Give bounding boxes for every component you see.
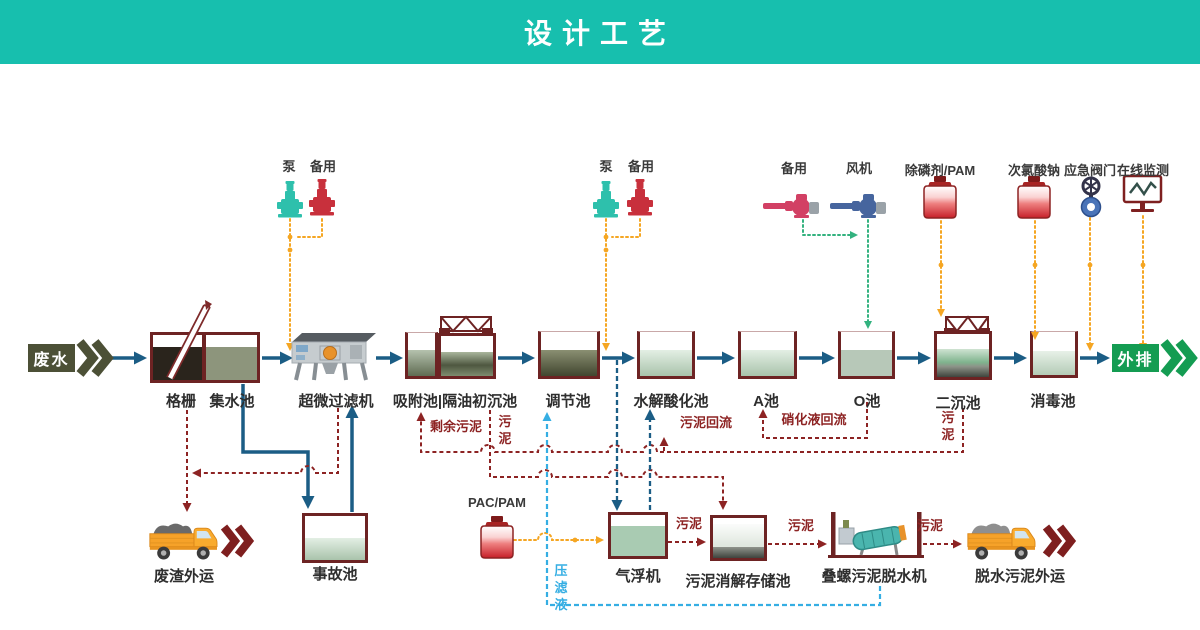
nitrate-return-label: 硝化液回流 [781,409,846,428]
valve-label: 应急阀门 [1064,160,1116,179]
grille-label: 格栅 [166,390,196,411]
regulating-label: 调节池 [545,390,590,411]
process-diagram: 设计工艺 废水 外排 [0,0,1200,630]
adsorption-label: 吸附池|隔油初沉池 [393,390,517,411]
dosing-lines [290,216,1143,540]
flotation-label: 气浮机 [615,565,660,586]
diagram-connectors [0,0,1200,630]
sludge-out-label: 脱水污泥外运 [975,565,1065,586]
collect-label: 集水池 [209,390,254,411]
hydrolysis-label: 水解酸化池 [633,390,708,411]
pump1-backup-label: 备用 [310,156,336,175]
sludge-truck-icon [968,524,1035,560]
pump-icon [593,181,619,218]
rake-icon [167,300,212,379]
backup-blower-icon [763,194,819,218]
o-tank-label: O池 [854,390,881,411]
disinfect-label: 消毒池 [1030,390,1075,411]
accident-label: 事故池 [312,563,357,584]
waste-out-label: 废渣外运 [154,565,214,586]
inlet-label: 废水 [33,346,69,370]
blower-label: 风机 [846,158,872,177]
backup-pump-icon [309,179,335,216]
backup-pump-icon [627,179,653,216]
online-monitor-icon [1124,176,1161,212]
waste-chevron-icon [224,527,249,555]
pump1-label: 泵 [282,156,295,175]
pump2-label: 泵 [599,156,612,175]
ultrafilter-machine-icon [292,333,376,380]
sludge-return-label: 污泥回流 [680,412,732,431]
blower-icon [830,194,886,218]
outlet-chevron-icon [1164,342,1192,374]
dosing-junctions [288,235,1146,543]
air-lines [803,220,868,322]
sludge-label: 污泥 [497,413,513,447]
phosphorus-label: 除磷剂/PAM [905,160,976,179]
phosphorus-agent-jug-icon [924,176,956,218]
a-tank-label: A池 [753,390,779,411]
emergency-valve-icon [1082,178,1101,217]
sludge-store-label: 污泥消解存储池 [685,570,790,591]
clarifier-truss-icons [440,317,989,333]
flotation-lines [617,360,650,510]
pump-icon [277,181,303,218]
ultrafilter-label: 超微过滤机 [298,390,373,411]
inlet-box: 废水 [28,344,75,372]
filtrate-label: 压滤液 [553,562,569,613]
blower-backup-label: 备用 [781,158,807,177]
excess-sludge-label: 剩余污泥 [430,416,482,435]
dewatering-machine-icon [828,512,924,558]
dewater-label: 叠螺污泥脱水机 [821,565,926,586]
sludge-out-chevron-icon [1046,527,1071,555]
waste-truck-icon [150,524,217,560]
hypochlorite-jug-icon [1018,176,1050,218]
monitor-label: 在线监测 [1117,160,1169,179]
pac-pam-label: PAC/PAM [468,495,526,510]
inlet-chevron-icon [80,342,108,374]
sludge-label: 污泥 [676,513,702,532]
flow-chevrons [80,342,1192,555]
pump2-backup-label: 备用 [628,156,654,175]
outlet-box: 外排 [1112,344,1159,372]
outlet-label: 外排 [1117,346,1153,370]
sludge-label: 污泥 [940,409,956,443]
sludge-label: 污泥 [788,515,814,534]
sludge-label: 污泥 [917,515,943,534]
hypochlorite-label: 次氯酸钠 [1008,160,1060,179]
pac-pam-jug-icon [481,516,513,558]
